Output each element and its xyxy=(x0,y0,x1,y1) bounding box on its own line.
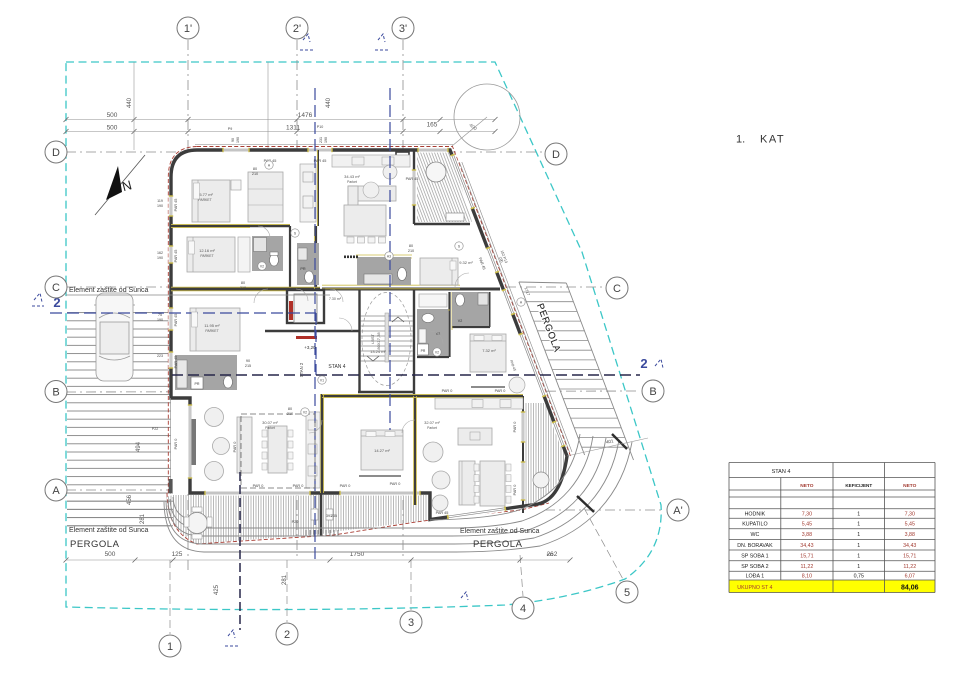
svg-text:B: B xyxy=(649,386,656,398)
svg-text:190: 190 xyxy=(236,137,240,143)
svg-text:13.24 m²: 13.24 m² xyxy=(370,349,386,354)
svg-text:Element zaštite od Sunca: Element zaštite od Sunca xyxy=(69,527,148,534)
svg-text:PERGOLA: PERGOLA xyxy=(70,539,120,550)
svg-text:HODNIK: HODNIK xyxy=(745,512,766,518)
svg-text:7.32 m²: 7.32 m² xyxy=(482,348,496,353)
svg-text:281: 281 xyxy=(282,574,288,585)
svg-text:190: 190 xyxy=(324,137,328,143)
svg-text:PARKET: PARKET xyxy=(205,329,218,333)
svg-text:P10: P10 xyxy=(317,125,323,129)
svg-text:14.27 m²: 14.27 m² xyxy=(374,448,390,453)
svg-text:84,06: 84,06 xyxy=(901,585,919,592)
svg-text:D: D xyxy=(52,147,60,159)
svg-text:Parket: Parket xyxy=(347,180,357,184)
svg-text:NETO: NETO xyxy=(903,483,917,489)
svg-text:190: 190 xyxy=(157,256,163,260)
svg-text:1: 1 xyxy=(857,532,860,538)
svg-text:223: 223 xyxy=(157,354,163,358)
svg-text:P9: P9 xyxy=(228,127,232,131)
svg-text:PARKET: PARKET xyxy=(198,198,211,202)
svg-text:PAR 0: PAR 0 xyxy=(513,485,517,496)
svg-text:A': A' xyxy=(673,505,682,517)
svg-text:440: 440 xyxy=(127,97,133,108)
svg-text:PAR 45: PAR 45 xyxy=(174,199,178,212)
svg-text:PARKET: PARKET xyxy=(200,254,213,258)
svg-text:12.16 m²: 12.16 m² xyxy=(199,248,215,253)
svg-text:Parket: Parket xyxy=(427,426,437,430)
svg-text:V2: V2 xyxy=(260,264,264,268)
svg-text:4: 4 xyxy=(520,603,526,615)
svg-text:7,30: 7,30 xyxy=(905,512,915,518)
svg-text:15,71: 15,71 xyxy=(800,553,813,559)
svg-text:3,88: 3,88 xyxy=(905,532,915,538)
svg-text:P22: P22 xyxy=(152,427,158,431)
svg-text:PAR 0: PAR 0 xyxy=(495,389,506,393)
svg-text:KUPATILO: KUPATILO xyxy=(742,522,767,528)
svg-text:231: 231 xyxy=(319,137,323,143)
svg-text:0,75: 0,75 xyxy=(854,574,864,580)
svg-text:80: 80 xyxy=(253,167,257,171)
svg-text:90: 90 xyxy=(246,359,250,363)
svg-text:500: 500 xyxy=(105,551,116,558)
svg-text:PAR 0: PAR 0 xyxy=(513,422,517,433)
svg-text:9.32 m²: 9.32 m² xyxy=(459,260,473,265)
svg-text:5: 5 xyxy=(624,587,630,599)
svg-text:Element zaštite od Sunca: Element zaštite od Sunca xyxy=(460,528,539,535)
svg-text:210: 210 xyxy=(240,286,246,290)
svg-text:PR: PR xyxy=(195,382,200,386)
svg-text:1: 1 xyxy=(857,553,860,559)
svg-text:235: 235 xyxy=(331,514,337,518)
svg-text:C: C xyxy=(52,282,60,294)
svg-text:1476: 1476 xyxy=(298,112,313,119)
svg-text:11,22: 11,22 xyxy=(800,564,813,570)
svg-text:1: 1 xyxy=(857,543,860,549)
svg-text:PAR 0: PAR 0 xyxy=(390,482,401,486)
svg-text:425: 425 xyxy=(214,584,220,595)
svg-text:PAR 0: PAR 0 xyxy=(233,442,237,453)
svg-text:1.: 1. xyxy=(736,134,745,146)
svg-text:119: 119 xyxy=(157,199,163,203)
svg-text:SP SOBA 2: SP SOBA 2 xyxy=(741,564,768,570)
svg-text:PAR 45: PAR 45 xyxy=(436,511,449,515)
svg-text:190: 190 xyxy=(157,204,163,208)
svg-text:3,88: 3,88 xyxy=(802,532,812,538)
svg-text:90: 90 xyxy=(231,138,235,142)
svg-text:1': 1' xyxy=(184,23,192,35)
svg-text:2: 2 xyxy=(284,629,290,641)
svg-text:7.30 m²: 7.30 m² xyxy=(329,297,342,301)
svg-text:P17: P17 xyxy=(547,553,554,557)
svg-text:215: 215 xyxy=(245,364,251,368)
svg-text:LOĐA 1: LOĐA 1 xyxy=(746,574,765,580)
svg-text:2': 2' xyxy=(293,23,301,35)
svg-text:PAR 0: PAR 0 xyxy=(293,484,304,488)
svg-text:P20: P20 xyxy=(292,520,299,524)
svg-text:500: 500 xyxy=(107,112,118,119)
svg-text:KAT: KAT xyxy=(760,134,785,146)
svg-text:162: 162 xyxy=(157,251,163,255)
svg-text:PAR 45: PAR 45 xyxy=(174,314,178,327)
svg-text:PAR 45: PAR 45 xyxy=(174,250,178,263)
svg-text:11,22: 11,22 xyxy=(903,564,916,570)
svg-text:5,45: 5,45 xyxy=(802,522,812,528)
svg-text:1: 1 xyxy=(167,641,173,653)
svg-text:5,45: 5,45 xyxy=(905,522,915,528)
svg-text:i-BST: i-BST xyxy=(370,333,375,344)
svg-text:210: 210 xyxy=(252,172,258,176)
svg-text:PR: PR xyxy=(421,349,426,353)
svg-text:1: 1 xyxy=(857,512,860,518)
svg-text:80X17,28: 80X17,28 xyxy=(376,332,381,350)
svg-text:34.43 m²: 34.43 m² xyxy=(344,174,360,179)
svg-text:1311: 1311 xyxy=(286,125,300,132)
svg-text:Element zaštite od Sunca: Element zaštite od Sunca xyxy=(69,287,148,294)
svg-text:NETO: NETO xyxy=(800,483,814,489)
svg-text:190: 190 xyxy=(157,318,163,322)
svg-text:SP SOBA 1: SP SOBA 1 xyxy=(741,553,768,559)
svg-text:PAR 45: PAR 45 xyxy=(314,159,327,163)
svg-text:8,10: 8,10 xyxy=(802,574,812,580)
svg-text:Parket: Parket xyxy=(265,426,275,430)
svg-text:7,30: 7,30 xyxy=(802,512,812,518)
svg-text:PAR 0: PAR 0 xyxy=(340,484,351,488)
svg-text:210: 210 xyxy=(408,249,414,253)
svg-text:11.95 m²: 11.95 m² xyxy=(204,323,220,328)
svg-text:PAR 45: PAR 45 xyxy=(174,356,178,369)
svg-text:V1: V1 xyxy=(320,378,324,382)
svg-text:80: 80 xyxy=(409,244,413,248)
svg-text:B: B xyxy=(52,386,59,398)
svg-text:DN. BORAVAK: DN. BORAVAK xyxy=(737,543,773,549)
svg-text:STAN 4: STAN 4 xyxy=(328,364,345,370)
svg-text:80: 80 xyxy=(288,407,292,411)
svg-text:PAR 0: PAR 0 xyxy=(442,389,453,393)
svg-text:3: 3 xyxy=(408,617,414,629)
svg-text:STAN 2: STAN 2 xyxy=(299,362,304,377)
svg-text:PERGOLA: PERGOLA xyxy=(473,539,523,550)
svg-text:440: 440 xyxy=(326,97,332,108)
svg-text:500: 500 xyxy=(107,125,118,132)
svg-text:PAR 0: PAR 0 xyxy=(253,484,264,488)
svg-text:A3: A3 xyxy=(387,254,391,258)
svg-text:1: 1 xyxy=(857,522,860,528)
svg-text:STAN 4: STAN 4 xyxy=(772,469,791,475)
svg-text:PAR 45: PAR 45 xyxy=(406,177,419,181)
svg-text:UKUPNO ST 4: UKUPNO ST 4 xyxy=(737,585,772,591)
svg-text:34,43: 34,43 xyxy=(800,543,813,549)
svg-text:V2: V2 xyxy=(303,410,307,414)
svg-text:3': 3' xyxy=(399,23,407,35)
svg-text:75: 75 xyxy=(158,313,162,317)
svg-text:2: 2 xyxy=(640,356,647,371)
svg-text:PAR 0: PAR 0 xyxy=(174,439,178,450)
svg-text:V2: V2 xyxy=(435,350,439,354)
svg-text:A: A xyxy=(52,485,60,497)
svg-text:32.07 m²: 32.07 m² xyxy=(424,420,440,425)
svg-text:D: D xyxy=(552,149,560,161)
svg-text:1: 1 xyxy=(857,564,860,570)
svg-text:125: 125 xyxy=(172,551,183,558)
svg-text:15,71: 15,71 xyxy=(903,553,916,559)
svg-text:6,07: 6,07 xyxy=(905,574,915,580)
svg-text:KEFICIJENT: KEFICIJENT xyxy=(845,483,872,488)
svg-text:WC: WC xyxy=(750,532,759,538)
svg-text:V2: V2 xyxy=(458,319,462,323)
svg-text:+3,20: +3,20 xyxy=(304,345,316,350)
svg-text:C: C xyxy=(613,283,621,295)
svg-text:34,43: 34,43 xyxy=(903,543,916,549)
svg-text:30.07 m²: 30.07 m² xyxy=(262,420,278,425)
svg-text:PR: PR xyxy=(300,267,306,271)
svg-text:165: 165 xyxy=(427,122,438,129)
svg-text:80: 80 xyxy=(241,281,245,285)
